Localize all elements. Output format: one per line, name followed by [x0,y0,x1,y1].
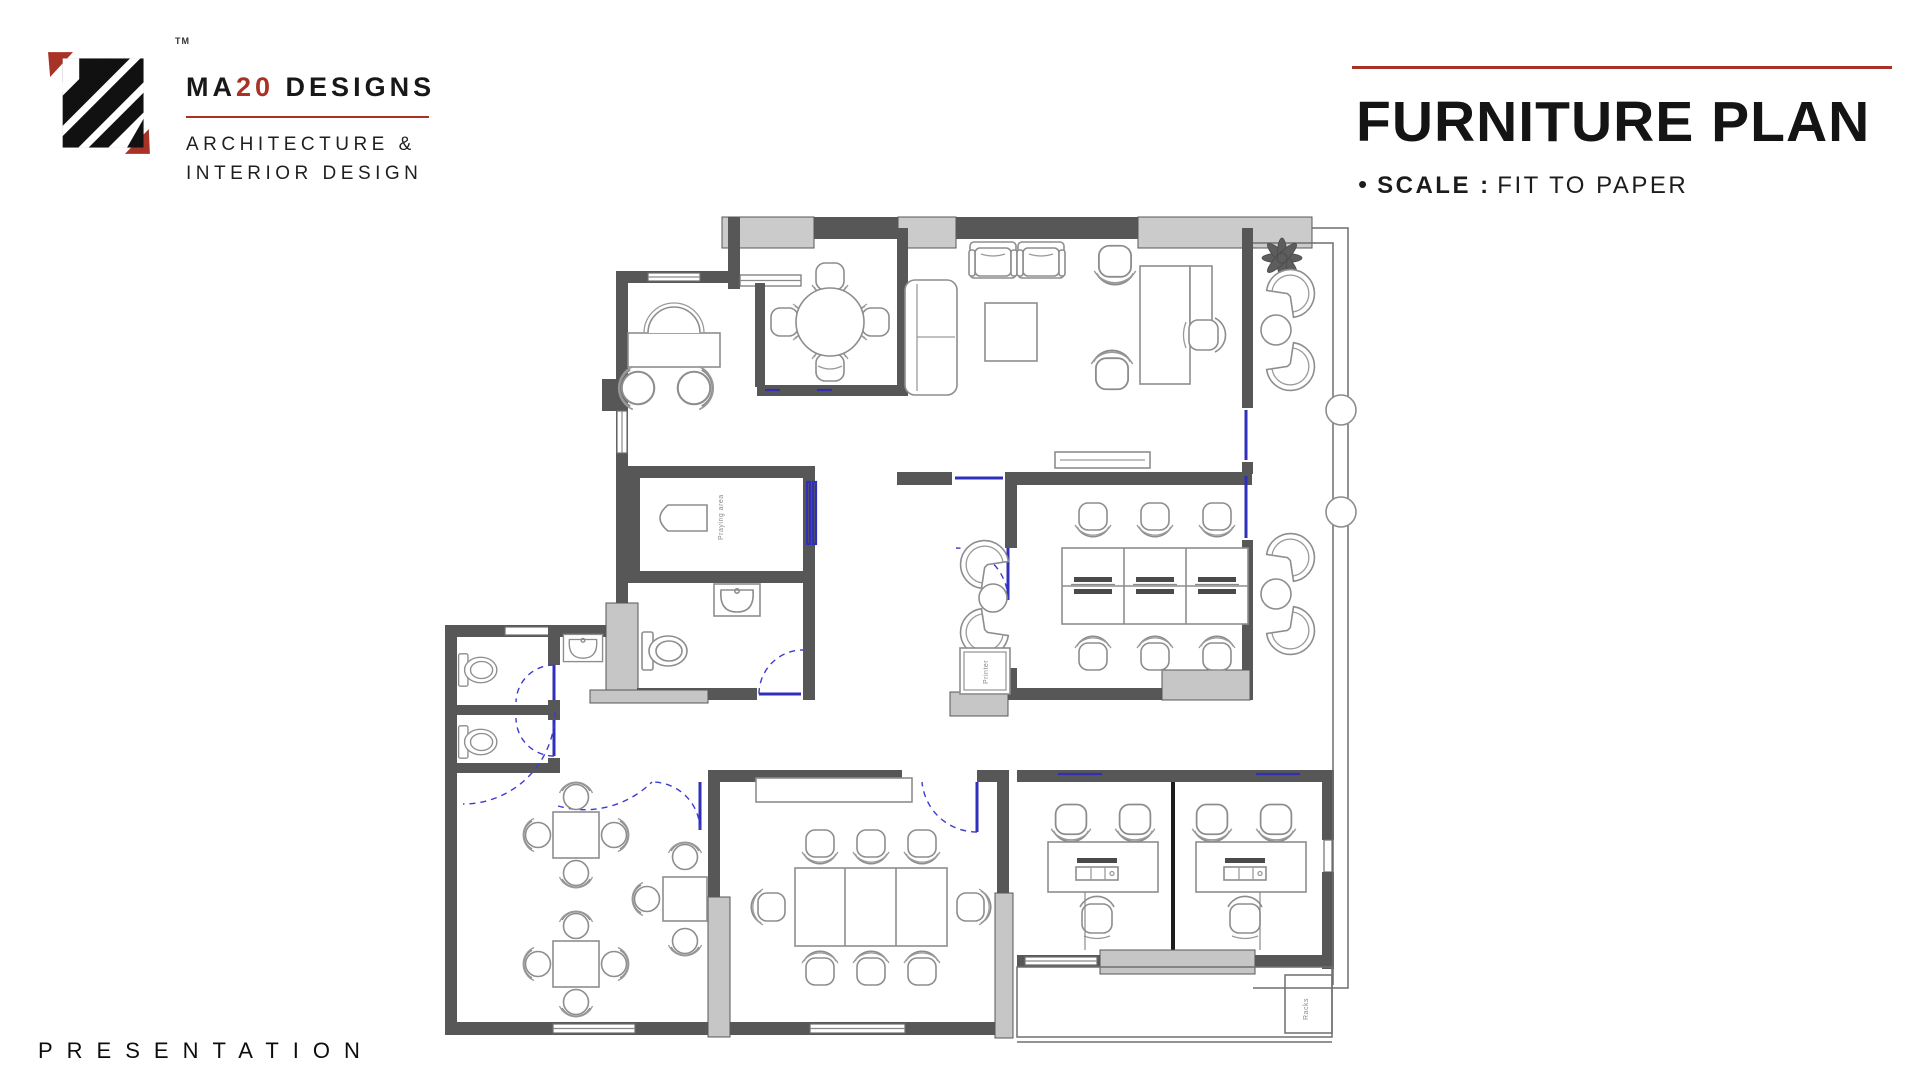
prayer-rug [660,505,707,531]
guest-chair [1091,350,1132,389]
cubicle [1048,805,1158,951]
coffee-table [985,303,1037,361]
manager-office [905,242,1226,468]
guest-chair [678,367,713,410]
sink [714,584,760,616]
cubicle [1192,805,1306,951]
hallway-lounge: Printer [951,531,1012,694]
credenza [756,778,912,802]
lounge-chair [951,531,1012,592]
praying-room: Praying area [660,494,725,540]
executive-chair [1228,896,1262,938]
praying-area-label: Praying area [718,494,725,540]
open-office [1062,503,1248,670]
printer-label: Printer [983,660,990,684]
cafe-table-group [523,782,629,888]
reception-chair [648,307,700,333]
toilet [642,632,687,670]
conference-table-group [751,830,991,985]
desk [1140,266,1190,384]
reception-desk [628,333,720,367]
sink [563,634,602,661]
cafe-table-group [523,911,629,1017]
guest-chair [619,367,654,410]
furniture-plan-drawing: Racks [0,0,1920,1080]
cubicle-offices [1048,805,1306,951]
lounge-group [1261,260,1324,401]
toilet [459,726,497,758]
armchair [1017,242,1065,278]
guest-chair [1094,246,1135,285]
racks-label: Racks [1303,998,1310,1020]
toilet [459,654,497,686]
break-room [523,782,707,1017]
lounge-group [1261,524,1324,665]
armchair [969,242,1017,278]
corridor-lounge [1261,238,1324,664]
cafe-table-group [632,842,707,956]
meeting-room [751,778,991,985]
